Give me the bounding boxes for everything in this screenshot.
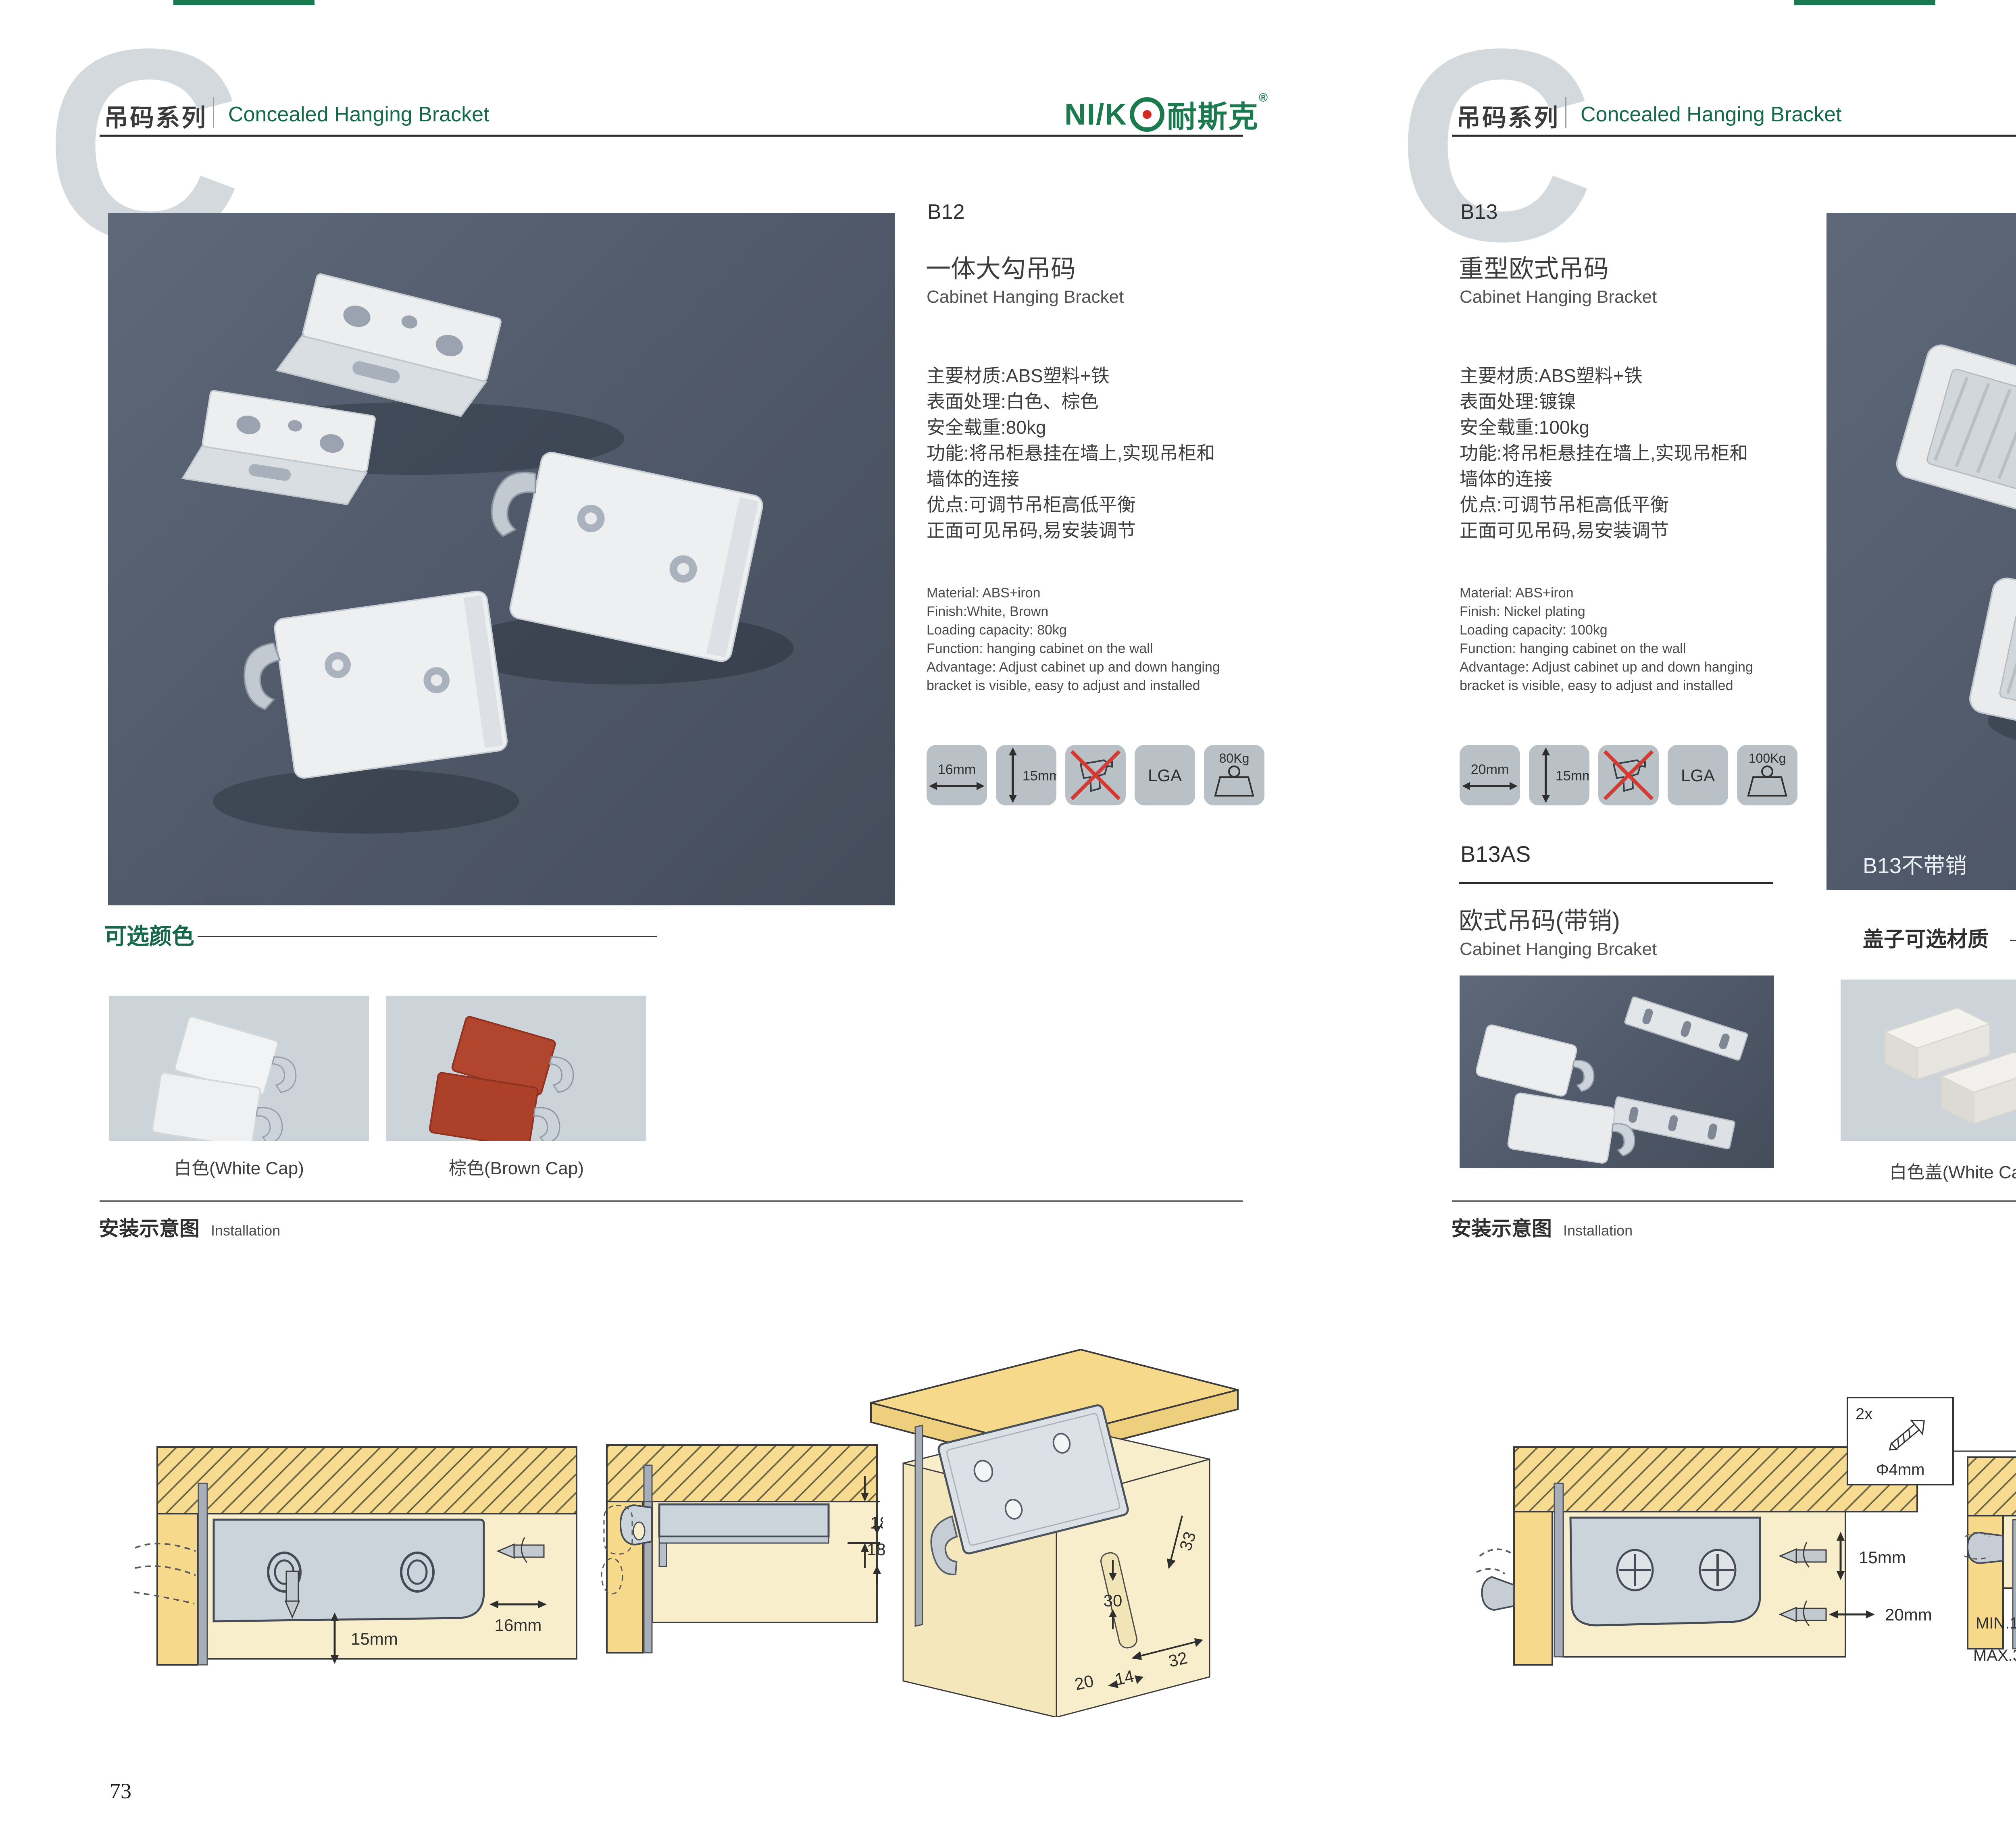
b13as-name-cn: 欧式吊码(带销) xyxy=(1459,901,1620,936)
product-code: B12 xyxy=(927,200,965,224)
dim-min: MIN.15 xyxy=(1976,1614,2016,1632)
spec-line: 表面处理:镀镍 xyxy=(1460,389,1748,414)
header-divider xyxy=(1565,97,1566,128)
watermark-letter: C xyxy=(1397,8,1595,282)
install-diagram-screw-section: 18 MIN.15 MAX.35 58 xyxy=(1960,1419,2016,1685)
width-icon: 20mm xyxy=(1460,745,1520,805)
page-number-left: 73 xyxy=(110,1778,131,1803)
spec-line: 墙体的连接 xyxy=(927,466,1215,492)
spec-line: Function: hanging cabinet on the wall xyxy=(1460,639,1753,658)
color-option-white-label: 白色(White Cap) xyxy=(109,1154,369,1179)
dim-18-left: 18 xyxy=(867,1540,886,1559)
product-specs-en: Material: ABS+iron Finish: Nickel platin… xyxy=(1460,584,1753,695)
dim-15mm: 15mm xyxy=(1859,1548,1906,1567)
install-heading: 安装示意图 Installation xyxy=(99,1213,280,1242)
series-title-cn: 吊码系列 xyxy=(1456,98,1560,133)
b12-photo-art xyxy=(108,213,895,905)
section-divider xyxy=(100,1200,1243,1202)
height-icon: 15mm xyxy=(1529,745,1589,805)
product-name-cn: 重型欧式吊码 xyxy=(1459,248,1609,285)
header-divider xyxy=(213,97,214,128)
spec-line: Function: hanging cabinet on the wall xyxy=(927,639,1220,658)
header-rule xyxy=(1452,135,2016,137)
spec-line: Finish:White, Brown xyxy=(927,602,1220,621)
logo-target-icon xyxy=(1130,97,1164,132)
cap-option-white-label: 白色盖(White Cap) xyxy=(1841,1158,2016,1183)
colors-section-rule xyxy=(198,936,657,937)
spec-line: 功能:将吊柜悬挂在墙上,实现吊柜和 xyxy=(927,440,1215,466)
b13as-rule xyxy=(1459,882,1773,884)
spec-line: 功能:将吊柜悬挂在墙上,实现吊柜和 xyxy=(1460,440,1748,466)
cert-label: LGA xyxy=(1148,766,1182,785)
product-specs-cn: 主要材质:ABS塑料+铁 表面处理:白色、棕色 安全载重:80kg 功能:将吊柜… xyxy=(927,363,1215,543)
product-specs-cn: 主要材质:ABS塑料+铁 表面处理:镀镍 安全载重:100kg 功能:将吊柜悬挂… xyxy=(1460,363,1748,543)
spec-line: Material: ABS+iron xyxy=(1460,584,1753,602)
dim-30: 30 xyxy=(1104,1591,1123,1610)
spec-line: 主要材质:ABS塑料+铁 xyxy=(927,363,1215,389)
screw-qty: 2x xyxy=(1856,1405,1872,1423)
spec-line: 墙体的连接 xyxy=(1460,466,1748,492)
spec-line: Advantage: Adjust cabinet up and down ha… xyxy=(927,658,1220,676)
install-title-cn: 安装示意图 xyxy=(99,1213,200,1242)
load-capacity-icon: 100Kg xyxy=(1737,745,1797,805)
spec-line: Material: ABS+iron xyxy=(927,584,1220,602)
b12-product-photo xyxy=(108,213,895,905)
b12-icon-row: 16mm 15mm LGA 80K xyxy=(927,745,1273,805)
product-name-en: Cabinet Hanging Bracket xyxy=(1460,287,1657,307)
height-icon: 15mm xyxy=(996,745,1056,805)
product-specs-en: Material: ABS+iron Finish:White, Brown L… xyxy=(927,584,1220,695)
b13as-product-photo xyxy=(1460,975,1774,1168)
product-name-cn: 一体大勾吊码 xyxy=(926,248,1076,285)
b13-product-photo: B13不带销 xyxy=(1826,213,2016,890)
cert-label: LGA xyxy=(1681,766,1715,785)
dim-15mm: 15mm xyxy=(351,1629,398,1648)
spec-line: 优点:可调节吊柜高低平衡 xyxy=(927,492,1215,518)
series-title-en: Concealed Hanging Bracket xyxy=(1581,102,1842,127)
colors-section-title: 可选颜色 xyxy=(104,918,194,951)
b13-icon-row: 20mm 15mm LGA 100 xyxy=(1460,745,1806,805)
color-option-brown-label: 棕色(Brown Cap) xyxy=(386,1154,646,1179)
dim-20mm: 20mm xyxy=(1885,1605,1932,1624)
spec-line: bracket is visible, easy to adjust and i… xyxy=(927,676,1220,695)
section-divider xyxy=(1452,1200,2016,1202)
lga-cert-icon: LGA xyxy=(1135,745,1195,805)
no-drill-icon xyxy=(1598,745,1659,805)
install-title-cn: 安装示意图 xyxy=(1451,1213,1552,1242)
load-capacity-icon: 80Kg xyxy=(1204,745,1264,805)
install-heading: 安装示意图 Installation xyxy=(1451,1213,1633,1242)
install-diagram-wall-section: 16mm 15mm xyxy=(133,1435,585,1685)
width-label: 16mm xyxy=(938,762,976,777)
caps-section-rule xyxy=(2010,940,2016,941)
spec-line: Loading capacity: 100kg xyxy=(1460,621,1753,639)
product-name-en: Cabinet Hanging Bracket xyxy=(927,287,1124,307)
install-title-en: Installation xyxy=(1563,1222,1633,1239)
no-drill-icon xyxy=(1065,745,1126,805)
screw-spec-box: 2x Φ4mm xyxy=(1847,1397,1954,1485)
spec-line: 正面可见吊码,易安装调节 xyxy=(927,518,1215,543)
spec-line: 正面可见吊码,易安装调节 xyxy=(1460,518,1748,543)
series-title-en: Concealed Hanging Bracket xyxy=(228,102,489,127)
header-rule xyxy=(100,135,1243,137)
top-accent-bar xyxy=(1794,0,1935,5)
load-label: 80Kg xyxy=(1219,751,1250,765)
logo-cn: 耐斯克 xyxy=(1167,93,1259,136)
install-title-en: Installation xyxy=(211,1222,280,1239)
screw-diameter: Φ4mm xyxy=(1876,1461,1925,1479)
spec-line: Loading capacity: 80kg xyxy=(927,621,1220,639)
caps-section-title: 盖子可选材质 xyxy=(1863,922,1989,953)
height-label: 15mm xyxy=(1023,768,1056,784)
spec-line: 安全载重:100kg xyxy=(1460,414,1748,440)
height-label: 15mm xyxy=(1556,768,1589,784)
brand-logo: NI/K 耐斯克 ® xyxy=(1064,93,1268,136)
series-title-cn: 吊码系列 xyxy=(104,98,207,133)
logo-latin: NI/K xyxy=(1064,97,1127,131)
product-code: B13 xyxy=(1460,200,1498,224)
lga-cert-icon: LGA xyxy=(1668,745,1728,805)
dim-max: MAX.35 xyxy=(1973,1647,2016,1664)
spec-line: 表面处理:白色、棕色 xyxy=(927,389,1215,414)
b13-photo-label: B13不带销 xyxy=(1863,848,1967,880)
cap-option-white-image xyxy=(1841,980,2016,1141)
spec-line: bracket is visible, easy to adjust and i… xyxy=(1460,676,1753,695)
install-diagram-side-section: 18 xyxy=(601,1435,883,1661)
spec-line: Advantage: Adjust cabinet up and down ha… xyxy=(1460,658,1753,676)
color-option-brown-image xyxy=(386,996,646,1141)
catalog-spread: C 吊码系列 Concealed Hanging Bracket NI/K 耐斯… xyxy=(0,0,2016,1847)
logo-registered-mark: ® xyxy=(1259,91,1268,105)
install-diagram-isometric: 18 33 30 32 20 14 xyxy=(855,1342,1242,1717)
b13as-name-en: Cabinet Hanging Brcaket xyxy=(1460,939,1657,959)
dim-16mm: 16mm xyxy=(495,1616,542,1635)
load-label: 100Kg xyxy=(1749,751,1786,765)
spec-line: Finish: Nickel plating xyxy=(1460,602,1753,621)
spec-line: 安全载重:80kg xyxy=(927,414,1215,440)
b13-photo-art xyxy=(1826,213,2016,890)
width-icon: 16mm xyxy=(927,745,987,805)
width-label: 20mm xyxy=(1471,762,1509,777)
spec-line: 主要材质:ABS塑料+铁 xyxy=(1460,363,1748,389)
color-option-white-image xyxy=(109,996,369,1141)
spec-line: 优点:可调节吊柜高低平衡 xyxy=(1460,492,1748,518)
b13as-code: B13AS xyxy=(1460,841,1531,867)
